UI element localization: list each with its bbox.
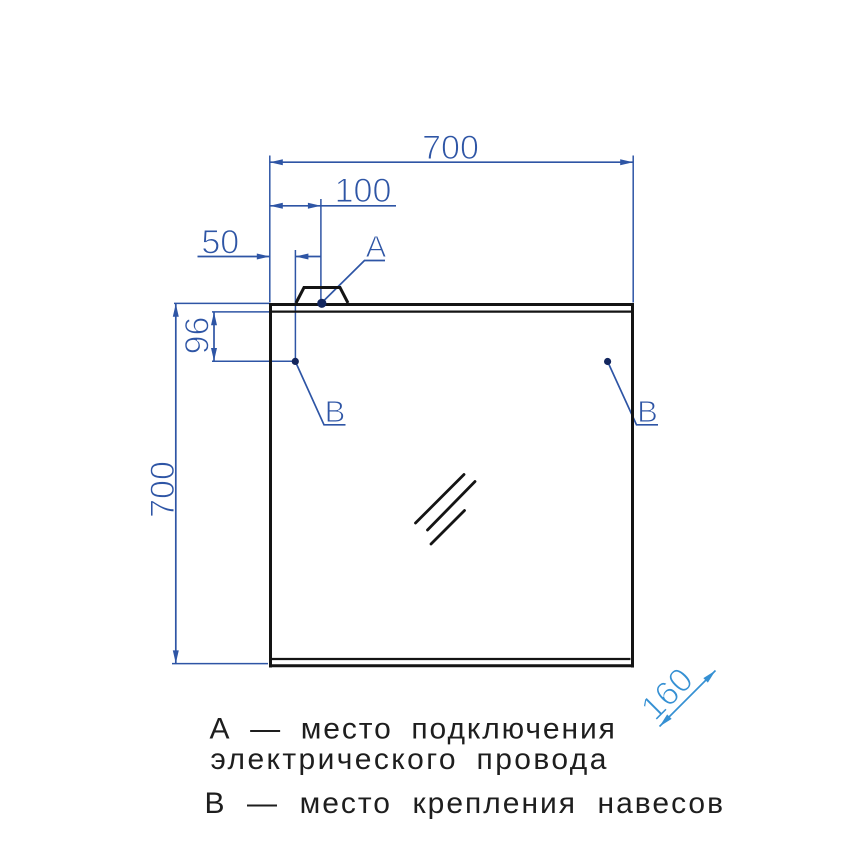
svg-text:A: A [366,229,387,264]
svg-text:А — место подключения: А — место подключения [210,713,617,746]
svg-text:В — место крепления навесов: В — место крепления навесов [205,787,726,820]
svg-text:100: 100 [335,172,392,210]
svg-text:B: B [325,394,346,429]
svg-text:96: 96 [179,317,217,355]
svg-text:B: B [637,394,658,429]
svg-text:50: 50 [201,224,239,262]
svg-text:электрического провода: электрического провода [211,743,609,776]
svg-text:700: 700 [144,461,182,518]
svg-text:700: 700 [422,129,479,167]
